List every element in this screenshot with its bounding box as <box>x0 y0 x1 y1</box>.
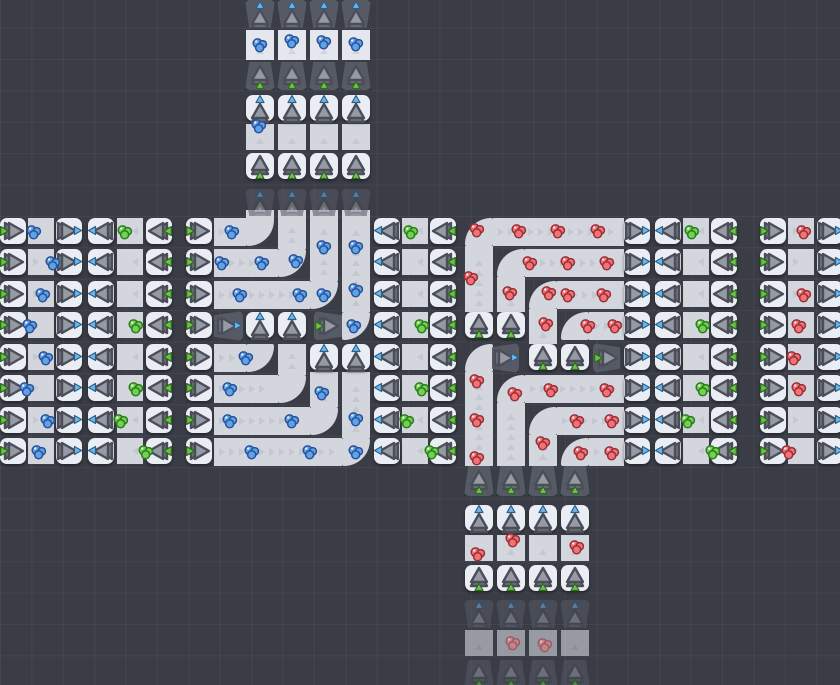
input-mark-icon <box>254 170 266 180</box>
cap-receiver[interactable] <box>88 218 114 244</box>
cap-emitter[interactable] <box>146 218 172 244</box>
cap-receiver[interactable] <box>624 438 650 464</box>
output-mark-icon <box>641 382 651 393</box>
cap-emitter[interactable] <box>760 312 786 338</box>
output-mark-icon <box>87 382 97 393</box>
gem-red <box>795 286 813 304</box>
bin-receiver[interactable] <box>277 0 307 28</box>
gem-green <box>704 443 722 461</box>
cap-emitter[interactable] <box>760 249 786 275</box>
gem-blue <box>21 317 39 335</box>
gem-red <box>568 412 586 430</box>
cap-emitter[interactable] <box>711 344 737 370</box>
output-mark-icon <box>350 94 362 104</box>
belt-chevron-icon <box>132 258 138 266</box>
input-mark-icon <box>0 288 10 300</box>
output-mark-icon <box>87 225 97 236</box>
output-mark-icon <box>641 256 651 267</box>
cap-receiver[interactable] <box>342 95 370 121</box>
gem-red <box>568 538 586 556</box>
cap-receiver[interactable] <box>624 407 650 433</box>
input-mark-icon <box>473 329 485 339</box>
gem-blue <box>313 384 331 402</box>
belt-chevron-icon <box>132 290 138 298</box>
cap-receiver[interactable] <box>655 438 681 464</box>
bin-receiver[interactable] <box>277 189 307 216</box>
gem-blue <box>39 412 57 430</box>
bin-emitter[interactable] <box>309 62 339 90</box>
cap-receiver[interactable] <box>624 375 650 401</box>
bin-emitter[interactable] <box>464 466 494 496</box>
cap-emitter[interactable] <box>246 153 274 179</box>
output-mark-icon <box>73 445 83 456</box>
cap-receiver[interactable] <box>374 249 400 275</box>
cap-receiver[interactable] <box>374 438 400 464</box>
cap-receiver[interactable] <box>655 344 681 370</box>
belt-chevron-icon <box>279 291 285 299</box>
cap-receiver[interactable] <box>374 312 400 338</box>
belt-tile[interactable] <box>788 249 814 275</box>
bin-emitter[interactable] <box>314 311 342 341</box>
belt-chevron-icon <box>249 385 255 393</box>
cap-emitter[interactable] <box>146 344 172 370</box>
input-mark-icon <box>162 382 173 394</box>
cap-emitter[interactable] <box>186 375 212 401</box>
input-mark-icon <box>727 225 738 237</box>
bin-receiver[interactable] <box>341 189 371 216</box>
bin-emitter[interactable] <box>496 660 526 685</box>
belt-chevron-icon <box>219 354 225 362</box>
cap-receiver[interactable] <box>342 344 370 370</box>
input-mark-icon <box>537 678 549 685</box>
cap-receiver[interactable] <box>88 438 114 464</box>
belt-chevron-icon <box>229 448 235 456</box>
belt-tile[interactable] <box>310 124 338 150</box>
gem-blue <box>291 286 309 304</box>
cap-emitter[interactable] <box>310 153 338 179</box>
output-mark-icon <box>537 504 549 514</box>
output-mark-icon <box>73 382 83 393</box>
belt-chevron-icon <box>698 258 704 266</box>
belt-chevron-icon <box>132 353 138 361</box>
belt-tile[interactable] <box>529 535 557 561</box>
input-mark-icon <box>0 256 10 268</box>
cap-receiver[interactable] <box>817 375 840 401</box>
cap-receiver[interactable] <box>624 312 650 338</box>
cap-emitter[interactable] <box>711 375 737 401</box>
gem-green <box>116 223 134 241</box>
cap-receiver[interactable] <box>655 249 681 275</box>
output-mark-icon <box>654 445 664 456</box>
cap-receiver[interactable] <box>56 344 82 370</box>
cap-receiver[interactable] <box>88 249 114 275</box>
gem-red <box>468 411 486 429</box>
belt-tile[interactable] <box>214 438 342 466</box>
gem-red <box>542 381 560 399</box>
input-mark-icon <box>727 256 738 268</box>
cap-emitter[interactable] <box>561 344 589 370</box>
cap-receiver[interactable] <box>817 249 840 275</box>
belt-chevron-icon <box>259 385 265 393</box>
belt-tile[interactable] <box>402 281 428 307</box>
cap-receiver[interactable] <box>278 312 306 338</box>
cap-receiver[interactable] <box>374 218 400 244</box>
belt-tile[interactable] <box>402 344 428 370</box>
cap-emitter[interactable] <box>760 407 786 433</box>
cap-emitter[interactable] <box>760 281 786 307</box>
belt-tile[interactable] <box>117 281 143 307</box>
cap-emitter[interactable] <box>711 407 737 433</box>
cap-receiver[interactable] <box>88 312 114 338</box>
cap-emitter[interactable] <box>711 281 737 307</box>
input-mark-icon <box>0 351 10 363</box>
cap-receiver[interactable] <box>88 281 114 307</box>
cap-receiver[interactable] <box>374 375 400 401</box>
cap-emitter[interactable] <box>430 281 456 307</box>
bin-emitter[interactable] <box>560 466 590 496</box>
belt-chevron-icon <box>507 444 515 450</box>
belt-chevron-icon <box>288 353 296 359</box>
cap-receiver[interactable] <box>817 344 840 370</box>
input-mark-icon <box>759 445 770 457</box>
cap-receiver[interactable] <box>88 344 114 370</box>
bin-emitter[interactable] <box>528 466 558 496</box>
cap-emitter[interactable] <box>186 218 212 244</box>
cap-emitter[interactable] <box>760 344 786 370</box>
input-mark-icon <box>185 351 196 363</box>
cap-emitter[interactable] <box>146 281 172 307</box>
belt-tile[interactable] <box>683 281 709 307</box>
output-mark-icon <box>73 256 83 267</box>
input-mark-icon <box>537 361 549 371</box>
belt-chevron-icon <box>417 416 423 424</box>
input-mark-icon <box>759 319 770 331</box>
belt-tile[interactable] <box>788 407 814 433</box>
cap-receiver[interactable] <box>817 281 840 307</box>
bin-emitter[interactable] <box>496 466 526 496</box>
gem-red <box>549 222 567 240</box>
cap-emitter[interactable] <box>711 312 737 338</box>
cap-emitter[interactable] <box>146 312 172 338</box>
arrow-up-icon <box>564 607 586 627</box>
cap-receiver[interactable] <box>817 218 840 244</box>
bin-emitter[interactable] <box>245 62 275 90</box>
cap-emitter[interactable] <box>561 565 589 591</box>
arrow-up-icon <box>345 350 367 370</box>
bin-emitter[interactable] <box>341 62 371 90</box>
input-mark-icon <box>727 351 738 363</box>
arrow-up-icon <box>281 318 303 338</box>
output-mark-icon <box>834 382 840 393</box>
cap-emitter[interactable] <box>430 344 456 370</box>
belt-curve[interactable] <box>310 407 338 435</box>
belt-chevron-icon <box>329 448 335 456</box>
cap-receiver[interactable] <box>278 95 306 121</box>
cap-emitter[interactable] <box>430 375 456 401</box>
belt-chevron-icon <box>417 353 423 361</box>
cap-emitter[interactable] <box>430 312 456 338</box>
cap-receiver[interactable] <box>624 218 650 244</box>
gem-red <box>534 434 552 452</box>
cap-emitter[interactable] <box>760 375 786 401</box>
gem-blue <box>345 317 363 335</box>
cap-emitter[interactable] <box>465 312 493 338</box>
belt-tile[interactable] <box>278 218 306 249</box>
cap-receiver[interactable] <box>374 344 400 370</box>
belt-chevron-icon <box>530 385 536 393</box>
cap-emitter[interactable] <box>711 218 737 244</box>
output-mark-icon <box>286 189 298 199</box>
cap-emitter[interactable] <box>0 407 26 433</box>
bin-receiver[interactable] <box>560 600 590 628</box>
cap-receiver[interactable] <box>374 407 400 433</box>
arrow-up-icon <box>500 607 522 627</box>
arrow-up-icon <box>564 511 586 531</box>
output-mark-icon <box>254 94 266 104</box>
cap-receiver[interactable] <box>655 281 681 307</box>
bin-receiver[interactable] <box>309 189 339 216</box>
bin-emitter[interactable] <box>277 62 307 90</box>
cap-emitter[interactable] <box>0 218 26 244</box>
bin-emitter[interactable] <box>528 660 558 685</box>
belt-tile[interactable] <box>342 124 370 150</box>
cap-receiver[interactable] <box>56 407 82 433</box>
cap-emitter[interactable] <box>146 375 172 401</box>
output-mark-icon <box>87 351 97 362</box>
cap-receiver[interactable] <box>624 344 650 370</box>
gem-green <box>423 443 441 461</box>
output-mark-icon <box>654 256 664 267</box>
cap-receiver[interactable] <box>88 407 114 433</box>
input-mark-icon <box>505 485 517 495</box>
gem-blue <box>283 412 301 430</box>
input-mark-icon <box>727 382 738 394</box>
cap-receiver[interactable] <box>88 375 114 401</box>
belt-chevron-icon <box>550 259 556 267</box>
cap-emitter[interactable] <box>186 312 212 338</box>
bin-receiver[interactable] <box>464 600 494 628</box>
cap-receiver[interactable] <box>624 249 650 275</box>
belt-chevron-icon <box>288 227 296 233</box>
gem-green <box>137 443 155 461</box>
belt-chevron-icon <box>608 228 614 236</box>
input-mark-icon <box>569 485 581 495</box>
bin-receiver[interactable] <box>309 0 339 28</box>
belt-tile[interactable] <box>561 630 589 656</box>
cap-emitter[interactable] <box>465 565 493 591</box>
input-mark-icon <box>185 414 196 426</box>
belt-chevron-icon <box>288 237 296 243</box>
cap-emitter[interactable] <box>146 249 172 275</box>
bin-receiver[interactable] <box>214 311 243 341</box>
gem-green <box>402 223 420 241</box>
output-mark-icon <box>373 382 383 393</box>
cap-emitter[interactable] <box>430 218 456 244</box>
gem-blue <box>253 254 271 272</box>
belt-tile[interactable] <box>465 630 493 656</box>
output-mark-icon <box>641 319 651 330</box>
output-mark-icon <box>373 288 383 299</box>
cap-receiver[interactable] <box>56 438 82 464</box>
input-mark-icon <box>759 414 770 426</box>
cap-emitter[interactable] <box>430 407 456 433</box>
belt-tile[interactable] <box>278 124 306 150</box>
input-mark-icon <box>759 225 770 237</box>
belt-chevron-icon <box>352 138 360 144</box>
gem-red <box>606 317 624 335</box>
gem-blue <box>243 443 261 461</box>
cap-receiver[interactable] <box>374 281 400 307</box>
bin-emitter[interactable] <box>560 660 590 685</box>
belt-curve[interactable] <box>465 344 493 372</box>
cap-emitter[interactable] <box>186 249 212 275</box>
gem-blue <box>30 443 48 461</box>
output-mark-icon <box>73 288 83 299</box>
cap-emitter[interactable] <box>146 407 172 433</box>
gem-blue <box>18 380 36 398</box>
cap-receiver[interactable] <box>817 407 840 433</box>
cap-receiver[interactable] <box>310 344 338 370</box>
belt-chevron-icon <box>269 448 275 456</box>
arrow-up-icon <box>313 7 335 27</box>
cap-receiver[interactable] <box>817 438 840 464</box>
belt-chevron-icon <box>570 385 576 393</box>
input-mark-icon <box>569 582 581 592</box>
bin-receiver[interactable] <box>341 0 371 28</box>
output-mark-icon <box>350 343 362 353</box>
input-mark-icon <box>759 256 770 268</box>
belt-chevron-icon <box>352 270 360 276</box>
cap-receiver[interactable] <box>310 95 338 121</box>
cap-receiver[interactable] <box>56 281 82 307</box>
output-mark-icon <box>87 445 97 456</box>
belt-tile[interactable] <box>683 344 709 370</box>
cap-receiver[interactable] <box>655 218 681 244</box>
bin-receiver[interactable] <box>492 343 519 373</box>
belt-curve[interactable] <box>529 407 557 435</box>
output-mark-icon <box>318 189 330 199</box>
cap-emitter[interactable] <box>529 344 557 370</box>
input-mark-icon <box>727 445 738 457</box>
belt-chevron-icon <box>417 290 423 298</box>
cap-emitter[interactable] <box>342 153 370 179</box>
belt-chevron-icon <box>698 290 704 298</box>
cap-receiver[interactable] <box>624 281 650 307</box>
cap-emitter[interactable] <box>0 438 26 464</box>
input-mark-icon <box>727 288 738 300</box>
cap-emitter[interactable] <box>186 407 212 433</box>
cap-receiver[interactable] <box>465 505 493 531</box>
bin-emitter[interactable] <box>593 343 620 373</box>
cap-receiver[interactable] <box>246 312 274 338</box>
gem-red <box>579 317 597 335</box>
gem-red <box>506 385 524 403</box>
cap-emitter[interactable] <box>0 249 26 275</box>
cap-emitter[interactable] <box>186 281 212 307</box>
belt-tile[interactable] <box>117 344 143 370</box>
bin-receiver[interactable] <box>528 600 558 628</box>
arrow-up-icon <box>313 101 335 121</box>
belt-chevron-icon <box>539 454 547 460</box>
cap-emitter[interactable] <box>497 312 525 338</box>
cap-emitter[interactable] <box>497 565 525 591</box>
cap-receiver[interactable] <box>56 218 82 244</box>
cap-receiver[interactable] <box>497 505 525 531</box>
belt-tile[interactable] <box>342 372 370 438</box>
gem-red <box>468 221 486 239</box>
input-mark-icon <box>314 320 325 332</box>
output-mark-icon <box>233 320 243 331</box>
gem-blue <box>251 36 269 54</box>
cap-emitter[interactable] <box>760 218 786 244</box>
cap-receiver[interactable] <box>655 407 681 433</box>
gem-red <box>780 443 798 461</box>
belt-curve[interactable] <box>246 218 274 246</box>
belt-tile[interactable] <box>497 403 525 466</box>
bin-receiver[interactable] <box>245 0 275 28</box>
cap-receiver[interactable] <box>529 505 557 531</box>
gem-blue <box>250 117 268 135</box>
belt-tile[interactable] <box>117 249 143 275</box>
input-mark-icon <box>185 445 196 457</box>
belt-chevron-icon <box>528 228 534 236</box>
arrow-up-icon <box>345 101 367 121</box>
output-mark-icon <box>373 319 383 330</box>
cap-receiver[interactable] <box>56 312 82 338</box>
bin-emitter[interactable] <box>464 660 494 685</box>
output-mark-icon <box>87 256 97 267</box>
input-mark-icon <box>593 352 604 364</box>
bin-receiver[interactable] <box>245 189 275 216</box>
cap-emitter[interactable] <box>711 249 737 275</box>
arrow-up-icon <box>281 196 303 216</box>
input-mark-icon <box>759 288 770 300</box>
belt-tile[interactable] <box>278 344 306 375</box>
input-mark-icon <box>473 485 485 495</box>
arrow-up-icon <box>468 607 490 627</box>
belt-chevron-icon <box>319 448 325 456</box>
cap-emitter[interactable] <box>186 438 212 464</box>
belt-chevron-icon <box>352 260 360 266</box>
input-mark-icon <box>759 351 770 363</box>
belt-chevron-icon <box>475 644 483 650</box>
cap-emitter[interactable] <box>0 344 26 370</box>
cap-emitter[interactable] <box>278 153 306 179</box>
belt-chevron-icon <box>352 230 360 236</box>
belt-tile[interactable] <box>402 249 428 275</box>
belt-chevron-icon <box>475 404 483 410</box>
cap-emitter[interactable] <box>430 249 456 275</box>
bin-receiver[interactable] <box>496 600 526 628</box>
cap-emitter[interactable] <box>0 281 26 307</box>
belt-curve[interactable] <box>278 375 306 403</box>
cap-emitter[interactable] <box>186 344 212 370</box>
cap-receiver[interactable] <box>655 312 681 338</box>
cap-receiver[interactable] <box>56 375 82 401</box>
cap-receiver[interactable] <box>817 312 840 338</box>
belt-chevron-icon <box>571 644 579 650</box>
cap-receiver[interactable] <box>561 505 589 531</box>
output-mark-icon <box>473 504 485 514</box>
output-mark-icon <box>73 414 83 425</box>
cap-emitter[interactable] <box>529 565 557 591</box>
cap-receiver[interactable] <box>655 375 681 401</box>
gem-red <box>536 636 554 654</box>
gem-green <box>679 412 697 430</box>
belt-chevron-icon <box>259 291 265 299</box>
input-mark-icon <box>318 80 330 90</box>
belt-tile[interactable] <box>683 249 709 275</box>
